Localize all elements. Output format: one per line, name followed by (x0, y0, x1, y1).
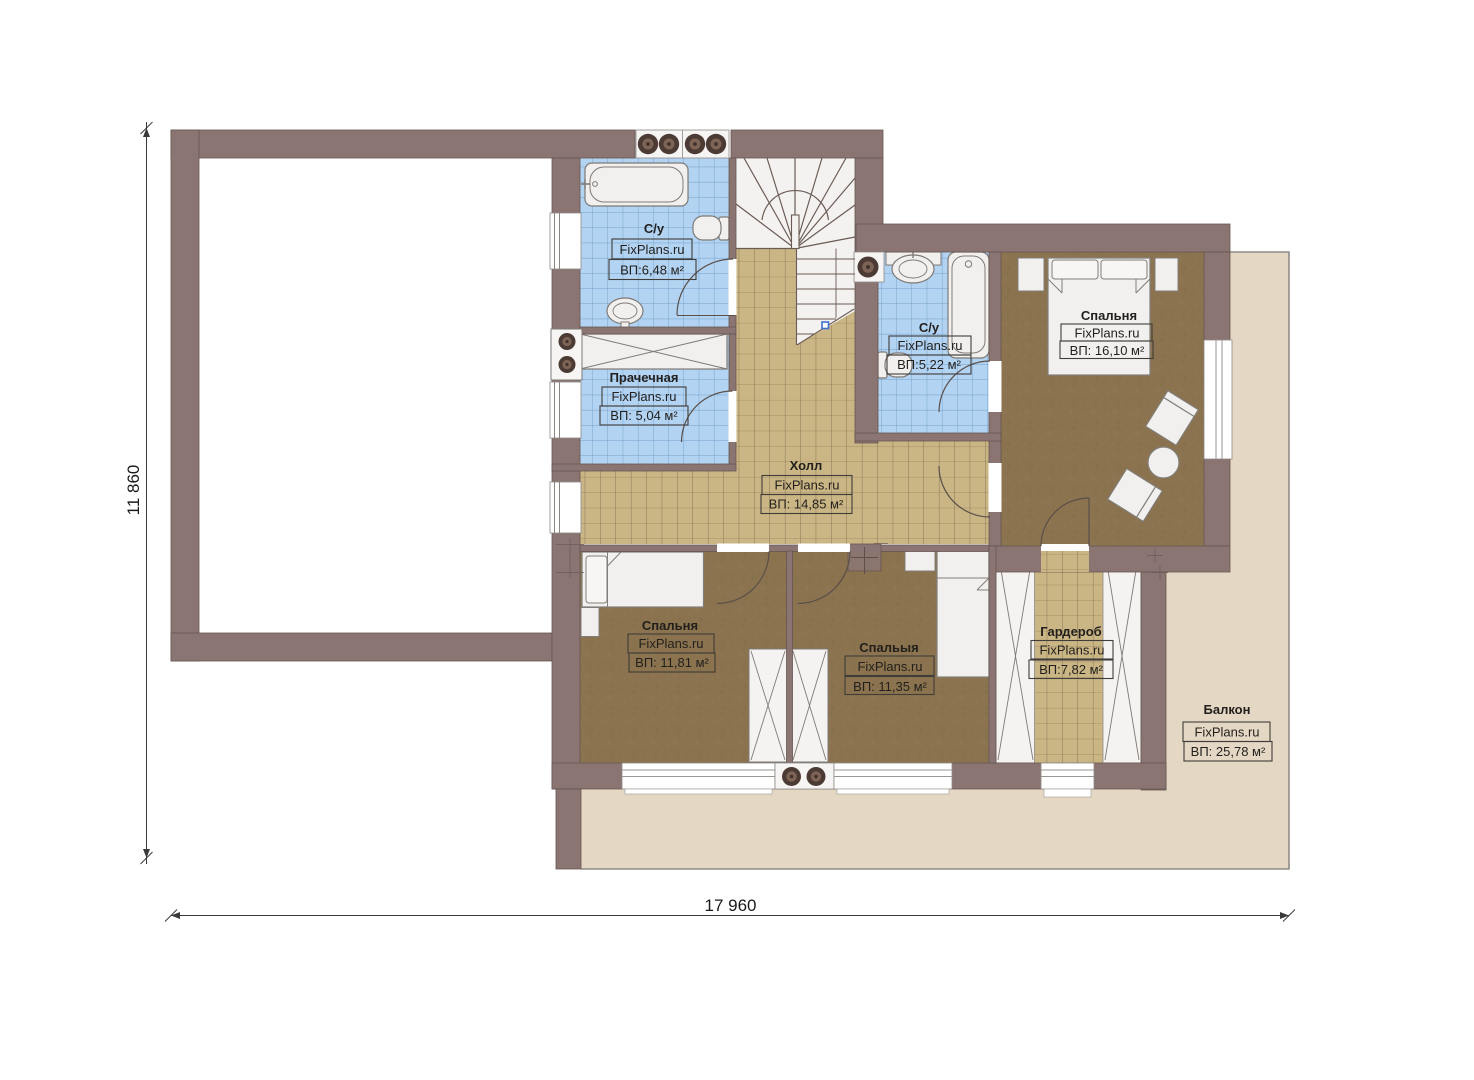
svg-text:ВП: 16,10 м²: ВП: 16,10 м² (1070, 343, 1145, 358)
svg-text:ВП:7,82 м²: ВП:7,82 м² (1039, 662, 1103, 677)
svg-text:С/у: С/у (919, 320, 940, 335)
svg-text:Прачечная: Прачечная (610, 370, 679, 385)
svg-text:Спальня: Спальня (642, 618, 698, 633)
svg-text:ВП:6,48 м²: ВП:6,48 м² (620, 263, 684, 278)
svg-text:17 960: 17 960 (705, 896, 757, 915)
svg-text:FixPlans.ru: FixPlans.ru (611, 389, 676, 404)
svg-text:Холл: Холл (790, 458, 823, 473)
svg-text:Балкон: Балкон (1204, 702, 1251, 717)
svg-text:FixPlans.ru: FixPlans.ru (897, 338, 962, 353)
svg-text:FixPlans.ru: FixPlans.ru (638, 636, 703, 651)
svg-text:FixPlans.ru: FixPlans.ru (1194, 725, 1259, 740)
svg-text:11 860: 11 860 (124, 465, 143, 516)
svg-text:FixPlans.ru: FixPlans.ru (857, 659, 922, 674)
svg-text:FixPlans.ru: FixPlans.ru (1074, 326, 1139, 341)
svg-text:ВП:5,22 м²: ВП:5,22 м² (897, 357, 961, 372)
svg-text:Спальня: Спальня (1081, 308, 1137, 323)
svg-text:ВП: 11,81 м²: ВП: 11,81 м² (635, 655, 709, 670)
svg-text:Гардероб: Гардероб (1040, 624, 1101, 639)
svg-text:FixPlans.ru: FixPlans.ru (774, 478, 839, 493)
svg-text:ВП: 14,85 м²: ВП: 14,85 м² (769, 497, 844, 512)
svg-text:FixPlans.ru: FixPlans.ru (1039, 643, 1104, 658)
svg-text:Спальыя: Спальыя (859, 640, 918, 655)
svg-text:ВП: 5,04 м²: ВП: 5,04 м² (610, 408, 678, 423)
svg-text:ВП: 11,35 м²: ВП: 11,35 м² (853, 679, 927, 694)
svg-text:ВП: 25,78 м²: ВП: 25,78 м² (1191, 744, 1266, 759)
svg-text:С/у: С/у (644, 221, 665, 236)
svg-text:FixPlans.ru: FixPlans.ru (619, 242, 684, 257)
